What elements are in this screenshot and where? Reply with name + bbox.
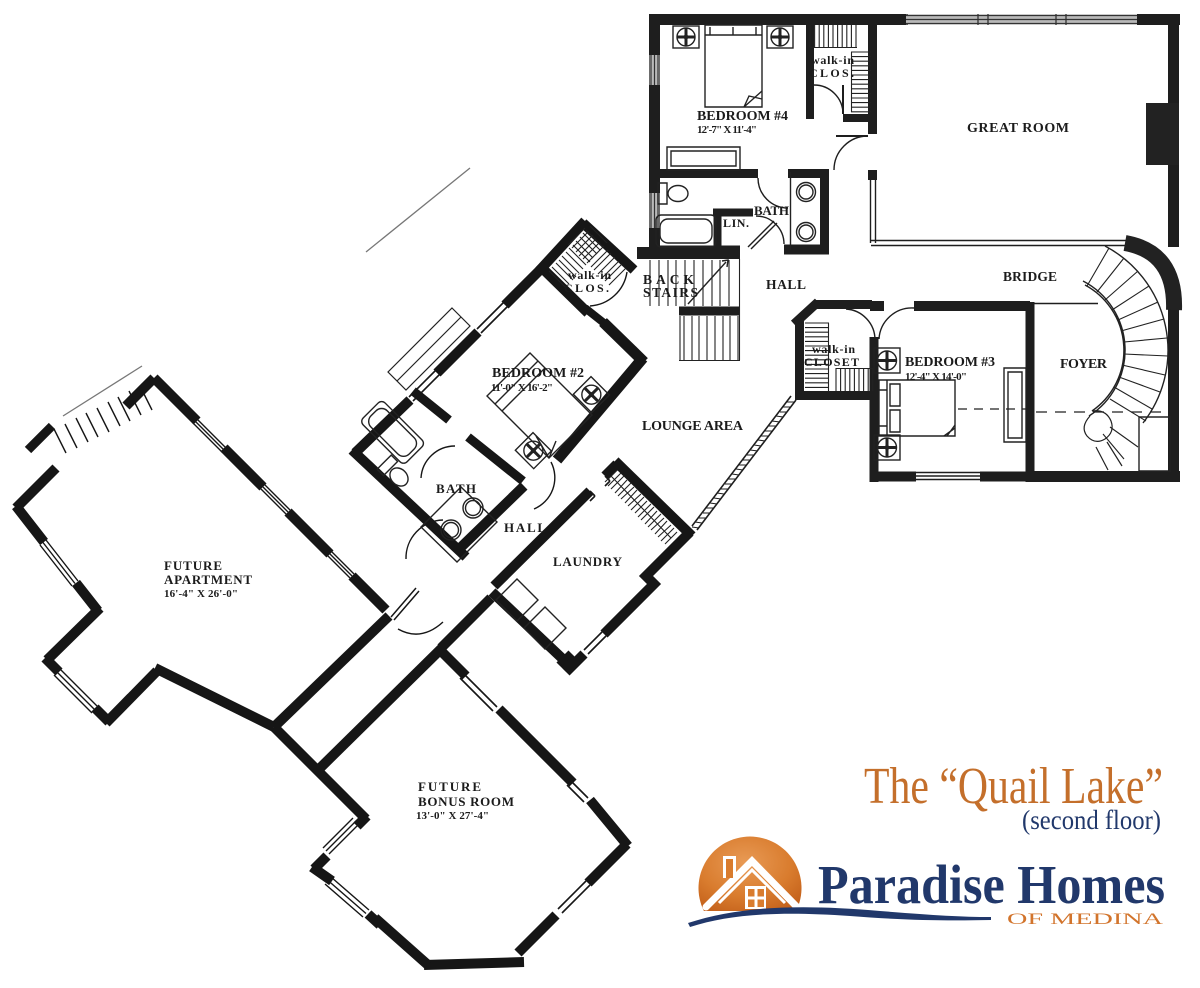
svg-text:BATH: BATH (436, 481, 477, 496)
svg-text:BONUS ROOM: BONUS ROOM (418, 794, 515, 809)
svg-text:LOUNGE AREA: LOUNGE AREA (642, 419, 744, 434)
svg-text:FUTURE: FUTURE (164, 558, 223, 573)
svg-text:12'-4" X 14'-0": 12'-4" X 14'-0" (905, 371, 967, 383)
svg-text:(second floor): (second floor) (1022, 805, 1161, 835)
svg-text:walk-in: walk-in (568, 268, 612, 282)
svg-text:HALL: HALL (766, 277, 807, 292)
svg-text:STAIRS: STAIRS (643, 285, 699, 300)
svg-text:CLOS.: CLOS. (564, 281, 610, 295)
svg-text:GREAT ROOM: GREAT ROOM (967, 121, 1070, 136)
svg-text:LIN.: LIN. (723, 216, 750, 230)
svg-text:BRIDGE: BRIDGE (1003, 269, 1058, 284)
svg-text:LAUNDRY: LAUNDRY (553, 554, 623, 569)
svg-text:13'-0" X 27'-4": 13'-0" X 27'-4" (416, 810, 489, 822)
svg-text:OF MEDINA: OF MEDINA (1007, 911, 1164, 928)
svg-text:walk-in: walk-in (811, 53, 855, 67)
svg-text:CLOSET: CLOSET (804, 355, 860, 369)
svg-text:BEDROOM #3: BEDROOM #3 (905, 355, 996, 370)
svg-text:Paradise Homes: Paradise Homes (818, 854, 1165, 915)
svg-text:FUTURE: FUTURE (418, 779, 482, 794)
svg-text:12'-7" X 11'-4": 12'-7" X 11'-4" (697, 124, 757, 136)
svg-text:16'-4" X 26'-0": 16'-4" X 26'-0" (164, 588, 238, 600)
svg-text:FOYER: FOYER (1060, 357, 1108, 372)
svg-text:walk-in: walk-in (812, 342, 856, 356)
svg-text:BEDROOM #4: BEDROOM #4 (697, 109, 789, 124)
svg-text:HALL: HALL (504, 520, 547, 535)
svg-text:11'-0" X 16'-2": 11'-0" X 16'-2" (491, 382, 553, 394)
svg-text:BATH: BATH (754, 203, 790, 218)
svg-text:BEDROOM #2: BEDROOM #2 (492, 366, 585, 381)
svg-text:CLOS.: CLOS. (809, 66, 855, 80)
svg-text:APARTMENT: APARTMENT (164, 572, 253, 587)
